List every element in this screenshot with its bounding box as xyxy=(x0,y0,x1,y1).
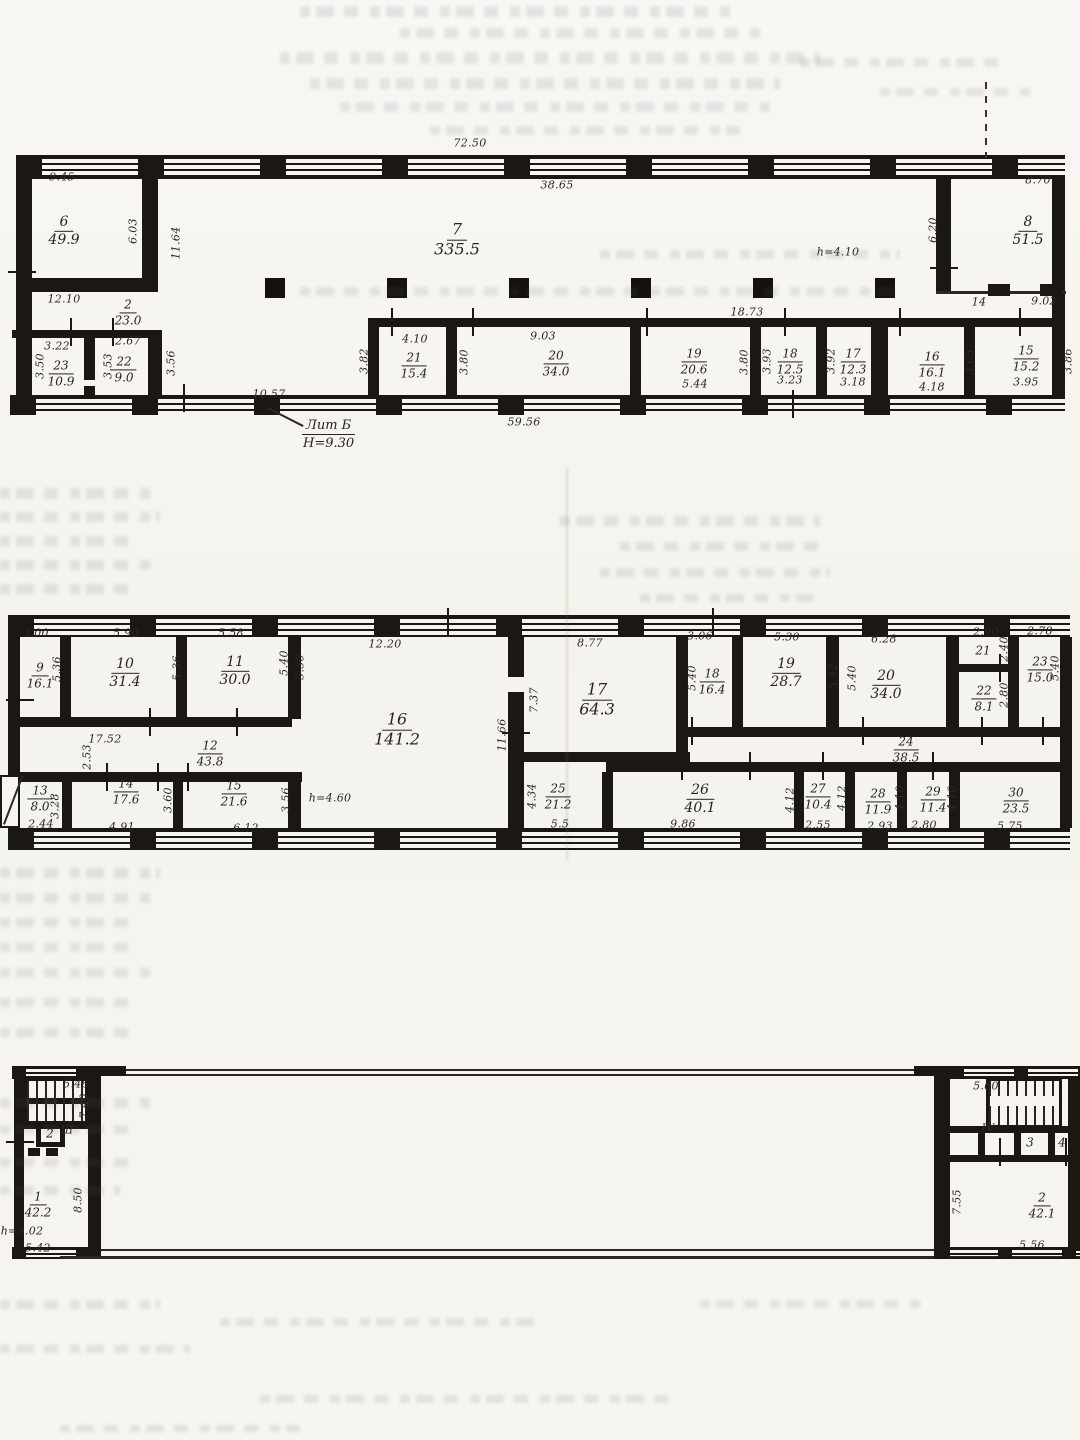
room-number: 7 xyxy=(447,222,467,241)
dimension-label: 4.10 xyxy=(894,785,907,811)
room-label: 1130.0 xyxy=(219,653,250,687)
scan-bleed-through xyxy=(0,512,160,522)
room-label: 2640.1 xyxy=(684,781,715,815)
dimension-label: 3.80 xyxy=(738,349,751,375)
wall-segment xyxy=(950,1155,1080,1162)
scan-bleed-through xyxy=(340,102,770,112)
room-number: 16 xyxy=(919,350,944,365)
dimension-label: 4.10 xyxy=(402,333,428,346)
floor-plan-scan: 649.97335.5851.5223.02310.9229.02115.420… xyxy=(0,0,1080,1440)
room-number: 24 xyxy=(893,735,918,750)
door-mark xyxy=(930,267,958,269)
dimension-label: 5.42 xyxy=(25,1242,51,1255)
room-label: 2034.0 xyxy=(543,346,570,377)
litera-annotation: Лит Б Н=9.30 xyxy=(302,418,355,451)
wall-segment xyxy=(934,1066,950,1256)
dimension-label: 11.64 xyxy=(170,227,183,260)
door-mark xyxy=(149,708,151,736)
room-area: 17.6 xyxy=(113,792,140,806)
door-mark xyxy=(999,1138,1001,1166)
thin-wall-line xyxy=(100,1249,936,1251)
room-number: 28 xyxy=(865,787,890,802)
scan-bleed-through xyxy=(0,968,150,977)
scan-bleed-through xyxy=(0,893,150,903)
room-area: 10.9 xyxy=(48,374,75,388)
stair-landing xyxy=(990,1096,1058,1106)
room-label: 1243.8 xyxy=(197,736,224,767)
room-label: 3 xyxy=(1021,1134,1039,1151)
dimension-label: 5.36 xyxy=(171,655,184,681)
dimension-label: 38.65 xyxy=(541,179,574,192)
door-mark xyxy=(8,271,36,273)
room-number: 3 xyxy=(1021,1137,1039,1151)
dimension-label: 5.44 xyxy=(682,378,708,391)
dimension-label: 18.73 xyxy=(731,306,764,319)
room-area: 38.5 xyxy=(893,750,920,764)
room-number: 19 xyxy=(681,347,706,362)
dimension-label: 5.30 xyxy=(774,631,800,644)
door-mark xyxy=(646,308,648,336)
door-mark xyxy=(157,763,159,791)
dimension-label: 3.93 xyxy=(761,348,774,374)
scan-bleed-through xyxy=(60,1425,300,1432)
room-area: 34.0 xyxy=(870,686,901,702)
door-mark xyxy=(1019,308,1021,336)
thin-wall-line xyxy=(100,1069,938,1071)
dimension-label: 4.34 xyxy=(526,783,539,809)
room-label: 1712.3 xyxy=(840,344,867,375)
wall-segment xyxy=(946,637,959,727)
room-label: 223.0 xyxy=(115,295,142,326)
room-number: 27 xyxy=(805,782,830,797)
room-label: 2521.2 xyxy=(545,779,572,810)
dimension-label: 12.10 xyxy=(48,293,81,306)
room-area: 21.6 xyxy=(221,794,248,808)
scan-bleed-through xyxy=(800,58,1000,67)
dimension-label: 9.86 xyxy=(670,818,696,831)
room-label: 1417.6 xyxy=(113,774,140,805)
dimension-label: 4.12 xyxy=(784,787,797,813)
dimension-label: 5.58 xyxy=(218,627,244,640)
dimension-label: 5.60 xyxy=(973,1080,999,1093)
dimension-label: 9.03 xyxy=(530,330,556,343)
door-mark xyxy=(681,752,683,780)
room-area: 12.3 xyxy=(840,362,867,376)
dimension-label: 3.18 xyxy=(840,376,866,389)
scan-bleed-through xyxy=(640,594,820,602)
room-area: 11.9 xyxy=(865,802,892,816)
room-area: 16.1 xyxy=(919,365,946,379)
wall-segment xyxy=(946,664,1019,672)
dimension-label: 72.50 xyxy=(454,137,487,150)
wall-segment xyxy=(84,338,95,380)
room-number: 20 xyxy=(872,669,900,686)
room-label: 2911.4 xyxy=(920,782,947,813)
scan-bleed-through xyxy=(0,868,160,878)
room-number: 6 xyxy=(55,215,74,232)
dimension-label: 5.75 xyxy=(997,820,1023,833)
room-label: 4 xyxy=(1053,1134,1071,1151)
scan-bleed-through xyxy=(600,568,830,577)
room-label: 1928.7 xyxy=(770,655,801,689)
dimension-label: 2.40 xyxy=(998,636,1011,662)
scan-bleed-through xyxy=(0,560,150,570)
scan-bleed-through xyxy=(600,250,900,259)
wall-segment xyxy=(676,727,1072,737)
room-number: 10 xyxy=(111,657,139,674)
room-number: 15 xyxy=(1013,344,1038,359)
room-number: 14 xyxy=(113,777,138,792)
room-area: 16.4 xyxy=(699,682,726,696)
wall-segment xyxy=(62,782,72,828)
room-number: 25 xyxy=(545,782,570,797)
room-label: 2438.5 xyxy=(893,732,920,763)
room-number: 26 xyxy=(686,783,714,800)
dimension-label: 7.37 xyxy=(528,687,541,713)
room-label: 2710.4 xyxy=(805,779,832,810)
room-label: 242.1 xyxy=(1029,1188,1056,1219)
room-area: 11.4 xyxy=(920,800,947,814)
room-number: 19 xyxy=(772,657,800,674)
scan-bleed-through xyxy=(0,1345,190,1353)
door-mark xyxy=(70,318,72,346)
wall-segment xyxy=(1068,1079,1080,1251)
door-mark xyxy=(691,717,693,745)
room-label: 1521.6 xyxy=(221,776,248,807)
room-number: 29 xyxy=(920,785,945,800)
room-label: 1816.4 xyxy=(699,664,726,695)
dimension-label: 5.5 xyxy=(551,818,569,831)
room-number: 9 xyxy=(31,661,49,676)
room-area: 51.5 xyxy=(1012,232,1043,248)
room-area: 43.8 xyxy=(197,754,224,768)
dimension-label: 2.80 xyxy=(998,682,1011,708)
wall-segment xyxy=(676,637,688,762)
room-area: 31.4 xyxy=(109,674,140,690)
dimension-label: 8.77 xyxy=(577,637,603,650)
room-number: 18 xyxy=(777,347,802,362)
dimension-label: 5.40 xyxy=(278,650,291,676)
dimension-label: 9.45 xyxy=(49,171,75,184)
wall-segment xyxy=(16,278,158,292)
room-area: 23.0 xyxy=(115,313,142,327)
room-number: 15 xyxy=(221,779,246,794)
room-number: 22 xyxy=(971,684,996,699)
room-number: 30 xyxy=(1003,786,1028,801)
door-mark xyxy=(6,699,34,701)
wall-segment xyxy=(173,782,183,828)
door-mark xyxy=(792,390,794,418)
dimension-label: 3.23 xyxy=(777,374,803,387)
dimension-label: 3.53 xyxy=(102,353,115,379)
room-number: 8 xyxy=(1019,215,1038,232)
room-area: 15.2 xyxy=(1013,359,1040,373)
room-label: 228.1 xyxy=(971,681,996,712)
dimension-label: 2.80 xyxy=(911,819,937,832)
dimension-label: 14 xyxy=(972,296,987,309)
dimension-label: 3.82 xyxy=(358,348,371,374)
room-number: 23 xyxy=(48,359,73,374)
room-number: 17 xyxy=(840,347,865,362)
scan-bleed-through xyxy=(0,1125,140,1134)
thin-wall-line xyxy=(60,1256,1080,1259)
room-area: 23.5 xyxy=(1003,801,1030,815)
room-number: 22 xyxy=(111,355,136,370)
wall-segment xyxy=(630,327,641,397)
scan-bleed-through xyxy=(400,28,760,38)
door-mark xyxy=(784,308,786,336)
dimension-label: 59.56 xyxy=(508,416,541,429)
room-area: 16.1 xyxy=(27,676,54,690)
wall-segment xyxy=(96,1066,126,1076)
room-label: 916.1 xyxy=(27,658,54,689)
room-label: 16141.2 xyxy=(374,712,420,749)
stair-arrow-box xyxy=(0,775,20,828)
room-area: 10.4 xyxy=(805,797,832,811)
dimension-label: 3.56 xyxy=(165,350,178,376)
room-area: 141.2 xyxy=(374,731,420,749)
wall-segment xyxy=(978,1133,985,1157)
scan-bleed-through xyxy=(620,542,830,551)
exterior-wall xyxy=(8,615,1070,637)
dimension-label: 5.46 xyxy=(63,1078,89,1091)
door-mark xyxy=(899,308,901,336)
dimension-label: 3.60 xyxy=(162,787,175,813)
scan-bleed-through xyxy=(0,918,140,927)
thin-wall-line xyxy=(100,1074,938,1076)
door-mark xyxy=(391,308,393,336)
wall-segment xyxy=(84,386,95,395)
dimension-label: 10.57 xyxy=(253,388,286,401)
door-mark xyxy=(106,763,108,791)
door-mark xyxy=(187,763,189,791)
room-area: 40.1 xyxy=(684,800,715,816)
door-mark xyxy=(236,708,238,736)
scan-bleed-through xyxy=(300,287,900,296)
room-label: 1515.2 xyxy=(1013,341,1040,372)
door-mark xyxy=(822,752,824,780)
wall-segment xyxy=(871,318,888,397)
building-height-label: Н=9.30 xyxy=(302,435,355,451)
dimension-label: 5.40 xyxy=(1049,655,1062,681)
room-area: 64.3 xyxy=(579,701,615,719)
wall-segment xyxy=(602,772,613,828)
room-label: 1764.3 xyxy=(579,682,615,719)
scan-bleed-through xyxy=(0,1098,150,1108)
room-number: 11 xyxy=(221,655,249,672)
dimension-label: 3.95 xyxy=(1013,376,1039,389)
dimension-label: 5.36 xyxy=(51,656,64,682)
dimension-label: 11.66 xyxy=(496,719,509,752)
room-number: 18 xyxy=(699,667,724,682)
dimension-label: 6.12 xyxy=(233,822,259,835)
room-label: 7335.5 xyxy=(434,222,480,259)
room-number: 16 xyxy=(382,712,412,731)
scan-bleed-through xyxy=(0,536,140,546)
room-label: 1031.4 xyxy=(109,655,140,689)
dimension-label: 4.91 xyxy=(109,821,135,834)
room-area: 21.2 xyxy=(545,797,572,811)
wall-segment xyxy=(988,284,1010,296)
dimension-label: 4.12 xyxy=(836,785,849,811)
room-label: 2811.9 xyxy=(865,784,892,815)
scan-bleed-through xyxy=(0,1186,120,1195)
scan-bleed-through xyxy=(0,488,150,499)
room-label: 649.9 xyxy=(48,213,79,247)
room-label: 1920.6 xyxy=(681,344,708,375)
dimension-label: 3.86 xyxy=(1062,348,1075,374)
room-label: 1616.1 xyxy=(919,347,946,378)
scan-bleed-through xyxy=(0,943,130,952)
scan-bleed-through xyxy=(880,88,1030,96)
dimension-label: 5.40 xyxy=(686,665,699,691)
dimension-label: 8.70 xyxy=(1025,174,1051,187)
scan-bleed-through xyxy=(0,1158,130,1167)
scan-bleed-through xyxy=(280,52,820,64)
dimension-label: 3.80 xyxy=(458,349,471,375)
room-label: 851.5 xyxy=(1012,213,1043,247)
dimension-label: 3.22 xyxy=(44,340,70,353)
wall-segment xyxy=(1014,1133,1021,1157)
dimension-label: 3.28 xyxy=(49,793,62,819)
dimension-label: 5.90 xyxy=(113,627,139,640)
room-number: 20 xyxy=(543,349,568,364)
door-mark xyxy=(932,752,934,780)
scan-bleed-through xyxy=(0,1300,160,1309)
room-label: 21 xyxy=(970,642,995,659)
dimension-label: 2.90 xyxy=(973,626,999,639)
dimension-label: 2.78 xyxy=(1027,625,1053,638)
dimension-label: 2.53 xyxy=(81,744,94,770)
dimension-label: 3.06 xyxy=(687,630,713,643)
litera-label: Лит Б xyxy=(302,418,355,435)
scan-bleed-through xyxy=(300,6,730,17)
wall-segment xyxy=(148,330,162,398)
room-label: 1812.5 xyxy=(777,344,804,375)
dimension-label: 12.20 xyxy=(369,638,402,651)
room-label: 2034.0 xyxy=(870,667,901,701)
dimension-label: 6.28 xyxy=(871,633,897,646)
dimension-label: 9.02 xyxy=(1031,295,1057,308)
room-label: 2310.9 xyxy=(48,356,75,387)
wall-segment xyxy=(508,752,690,762)
room-area: 8.1 xyxy=(971,699,996,713)
wall-segment xyxy=(36,1142,65,1147)
room-number: 17 xyxy=(582,682,612,701)
room-label: 2115.4 xyxy=(401,348,428,379)
room-number: 21 xyxy=(970,645,995,659)
dimension-label: 2.55 xyxy=(805,819,831,832)
dimension-label: 6.03 xyxy=(127,218,140,244)
dimension-label: 5.50 xyxy=(294,654,307,680)
floor-plan-canvas: 649.97335.5851.5223.02310.9229.02115.420… xyxy=(0,0,1080,1440)
door-mark xyxy=(862,717,864,745)
dimension-label: 6.20 xyxy=(927,217,940,243)
column xyxy=(265,278,285,298)
dimension-label: 2.93 xyxy=(867,820,893,833)
room-area: 30.0 xyxy=(219,672,250,688)
scan-bleed-through xyxy=(560,516,820,526)
dimension-label: 2.67 xyxy=(115,335,141,348)
wall-segment xyxy=(750,327,761,397)
scan-bleed-through xyxy=(220,1318,540,1326)
dimension-label: 5.56 xyxy=(1019,1239,1045,1252)
room-area: 20.6 xyxy=(681,362,708,376)
room-number: 21 xyxy=(401,351,426,366)
door-mark xyxy=(981,717,983,745)
exterior-wall xyxy=(10,395,1065,415)
scan-bleed-through xyxy=(310,78,780,89)
room-number: 2 xyxy=(1033,1191,1051,1206)
door-mark xyxy=(447,608,449,636)
door-mark xyxy=(183,384,185,412)
room-label: 3023.5 xyxy=(1003,783,1030,814)
wall-segment xyxy=(46,1148,58,1156)
scan-bleed-through xyxy=(430,126,740,135)
room-area: 28.7 xyxy=(770,674,801,690)
door-mark xyxy=(1042,717,1044,745)
scan-bleed-through xyxy=(0,1028,130,1037)
dimension-label: h=3.02 xyxy=(1,1225,44,1238)
door-mark xyxy=(6,1141,34,1143)
dimension-label: 3.00 xyxy=(23,627,49,640)
dimension-label: 3.56 xyxy=(280,787,293,813)
room-area: 42.2 xyxy=(25,1205,52,1219)
room-number: 4 xyxy=(1053,1137,1071,1151)
dimension-label: 4.10 xyxy=(946,785,959,811)
wall-segment xyxy=(732,637,743,727)
dimension-label: 5.42 xyxy=(827,663,840,689)
dimension-label: 7.55 xyxy=(951,1189,964,1215)
dimension-label: 3.50 xyxy=(34,353,47,379)
dimension-label: 3.65 xyxy=(964,349,977,375)
room-area: 9.0 xyxy=(111,370,136,384)
scan-bleed-through xyxy=(0,584,130,594)
wall-segment xyxy=(606,762,1072,772)
room-area: 34.0 xyxy=(543,364,570,378)
dimension-label: h=4.60 xyxy=(309,792,352,805)
room-area: 15.4 xyxy=(401,366,428,380)
door-mark xyxy=(472,308,474,336)
exterior-wall xyxy=(934,1247,1080,1259)
room-area: 42.1 xyxy=(1029,1206,1056,1220)
dimension-label: 2.44 xyxy=(28,818,54,831)
dimension-label: 4.18 xyxy=(919,381,945,394)
room-number: 12 xyxy=(197,739,222,754)
scan-bleed-through xyxy=(260,1395,680,1403)
dimension-label: 5.40 xyxy=(846,665,859,691)
dimension-label: IV xyxy=(982,1122,995,1135)
wall-segment xyxy=(508,637,524,677)
exterior-wall xyxy=(16,155,1065,179)
wall-segment xyxy=(142,179,158,291)
room-label: 229.0 xyxy=(111,352,136,383)
wall-segment xyxy=(28,1148,40,1156)
scan-bleed-through xyxy=(700,1300,920,1308)
room-area: 49.9 xyxy=(48,232,79,248)
door-mark xyxy=(749,752,751,780)
dimension-label: 3.92 xyxy=(825,348,838,374)
wall-segment xyxy=(446,327,457,397)
room-area: 335.5 xyxy=(434,241,480,259)
scan-bleed-through xyxy=(0,998,140,1007)
room-number: 2 xyxy=(119,298,137,313)
